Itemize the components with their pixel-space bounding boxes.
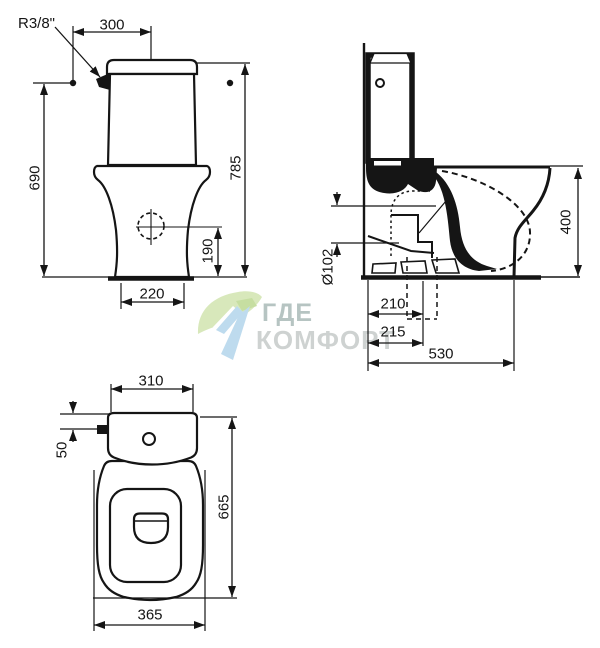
cistern-body-front xyxy=(108,74,196,165)
pedestal-front xyxy=(94,166,210,277)
bowl-rear-section xyxy=(433,172,497,271)
dim-label-400: 400 xyxy=(558,209,575,234)
base-shelf-side xyxy=(368,236,434,253)
technical-drawing-canvas: ГДЕ КОМФОРТ xyxy=(0,0,600,648)
dim-label-190: 190 xyxy=(200,238,217,263)
foot-pad-1 xyxy=(372,263,396,273)
supply-ref-dot-right xyxy=(227,80,233,86)
front-view-outline xyxy=(94,60,210,279)
cistern-lid-side xyxy=(370,54,411,64)
foot-pad-2 xyxy=(401,261,427,273)
top-view-outline xyxy=(97,413,203,600)
dim-label-supply-thread: R3/8" xyxy=(18,15,55,32)
cistern-lid-front xyxy=(107,60,197,74)
supply-fitting-top xyxy=(97,425,108,434)
watermark-text-line1: ГДЕ xyxy=(262,299,313,327)
drawing-svg: ГДЕ КОМФОРТ xyxy=(0,0,600,648)
dim-label-215: 215 xyxy=(380,324,405,341)
watermark-logo-icon xyxy=(198,291,262,360)
flush-connector-slot xyxy=(374,161,401,166)
dim-label-365: 365 xyxy=(137,607,162,624)
cistern-section-side xyxy=(368,55,412,161)
cistern-hole-side xyxy=(376,79,384,87)
sump-outline-top xyxy=(134,514,168,544)
supply-ref-dot-left xyxy=(70,80,76,86)
dim-label-220: 220 xyxy=(139,286,164,303)
flush-valve-mass xyxy=(366,168,437,193)
dim-label-50: 50 xyxy=(54,442,71,459)
leader-supply-thread xyxy=(55,27,100,77)
dim-label-210: 210 xyxy=(380,296,405,313)
dim-label-530: 530 xyxy=(428,346,453,363)
flush-button-top xyxy=(143,433,155,445)
dim-label-665: 665 xyxy=(216,494,233,519)
side-view-outline xyxy=(361,43,580,319)
foot-pad-3 xyxy=(432,259,459,273)
watermark-text-line2: КОМФОРТ xyxy=(256,325,396,355)
side-view: 400 Ø102 210 215 530 xyxy=(320,43,584,371)
dim-label-300: 300 xyxy=(99,17,124,34)
watermark: ГДЕ КОМФОРТ xyxy=(198,291,396,360)
top-view: 310 50 665 365 xyxy=(54,373,238,632)
dim-label-102: Ø102 xyxy=(320,249,337,286)
dim-label-310: 310 xyxy=(138,373,163,390)
dim-label-690: 690 xyxy=(27,165,44,190)
front-view: R3/8" 300 690 785 190 220 xyxy=(18,15,250,309)
bowl-front-profile xyxy=(514,168,550,277)
dim-label-785: 785 xyxy=(228,155,245,180)
